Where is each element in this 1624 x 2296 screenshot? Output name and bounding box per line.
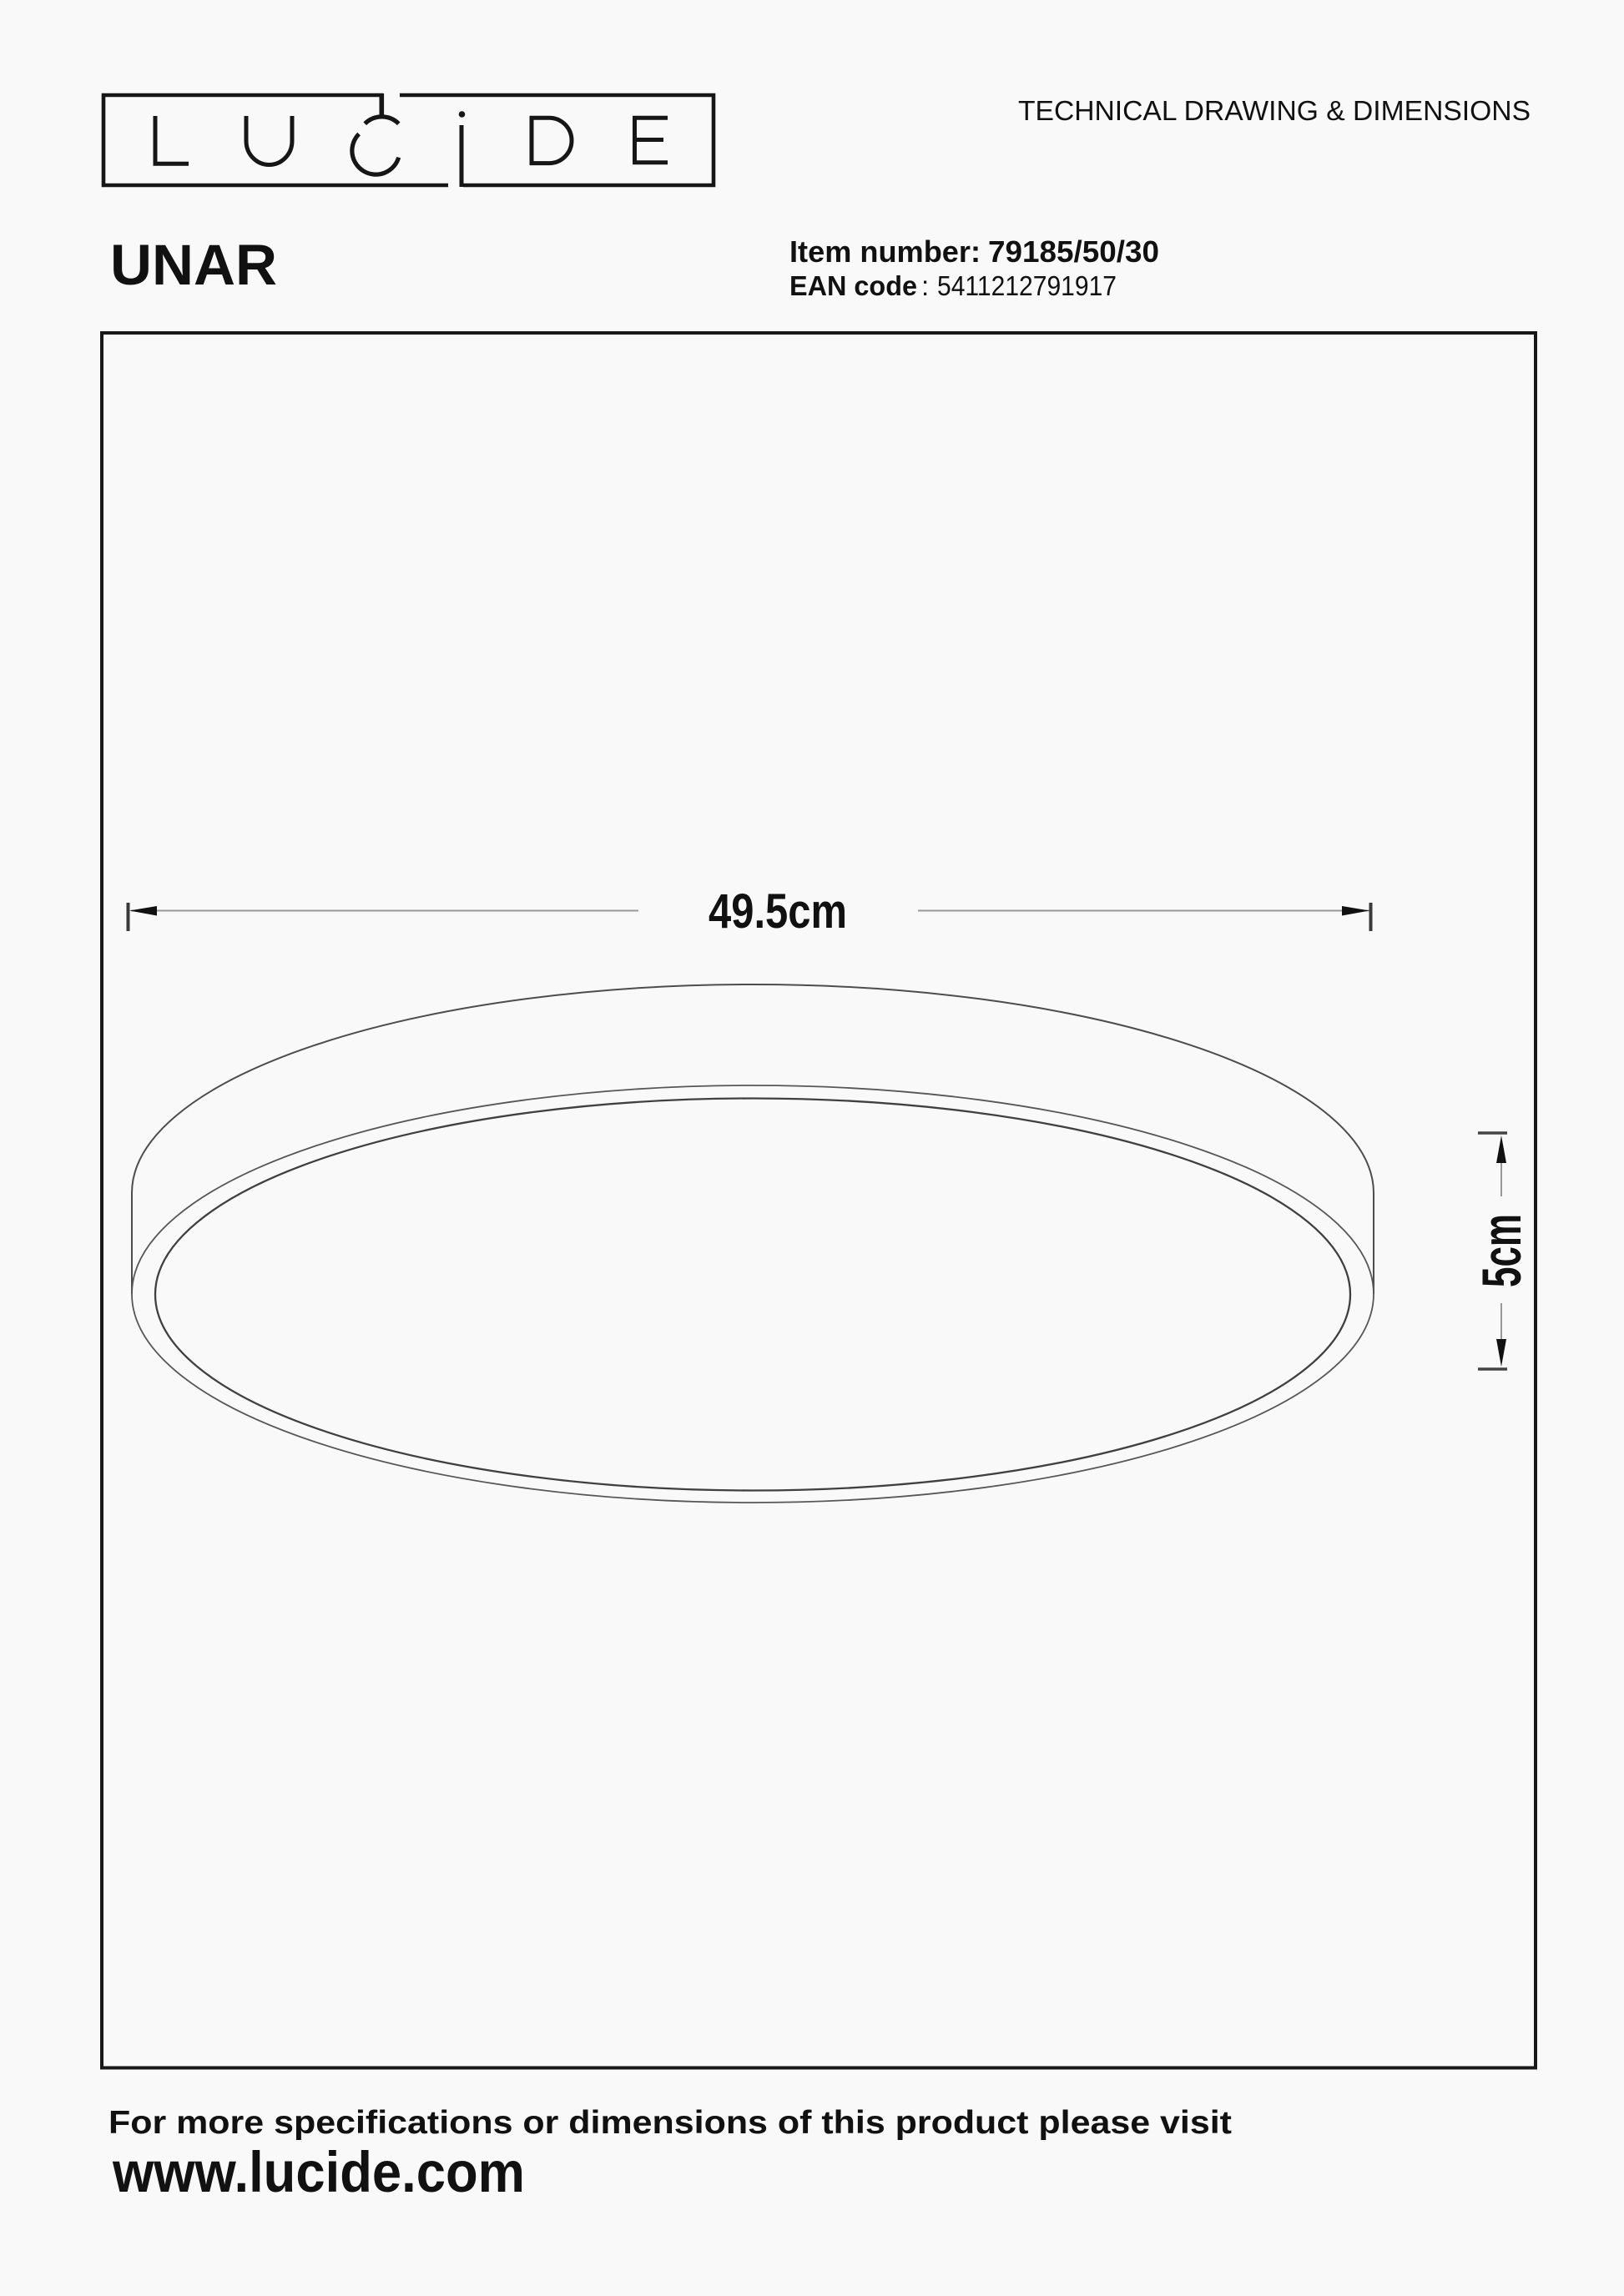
svg-text:TECHNICAL DRAWING & DIMENSIONS: TECHNICAL DRAWING & DIMENSIONS <box>1018 95 1531 126</box>
svg-text:5cm: 5cm <box>1470 1214 1532 1287</box>
svg-text:Item number:: Item number: <box>789 234 981 269</box>
svg-text:For more specifications or dim: For more specifications or dimensions of… <box>108 2105 1232 2141</box>
svg-text::: : <box>921 270 929 301</box>
svg-text:79185/50/30: 79185/50/30 <box>988 234 1159 269</box>
svg-text:EAN code: EAN code <box>789 270 917 301</box>
svg-text:www.lucide.com: www.lucide.com <box>112 2140 525 2204</box>
svg-text:49.5cm: 49.5cm <box>709 884 847 939</box>
svg-text:UNAR: UNAR <box>110 233 277 297</box>
svg-text:5411212791917: 5411212791917 <box>937 270 1117 301</box>
